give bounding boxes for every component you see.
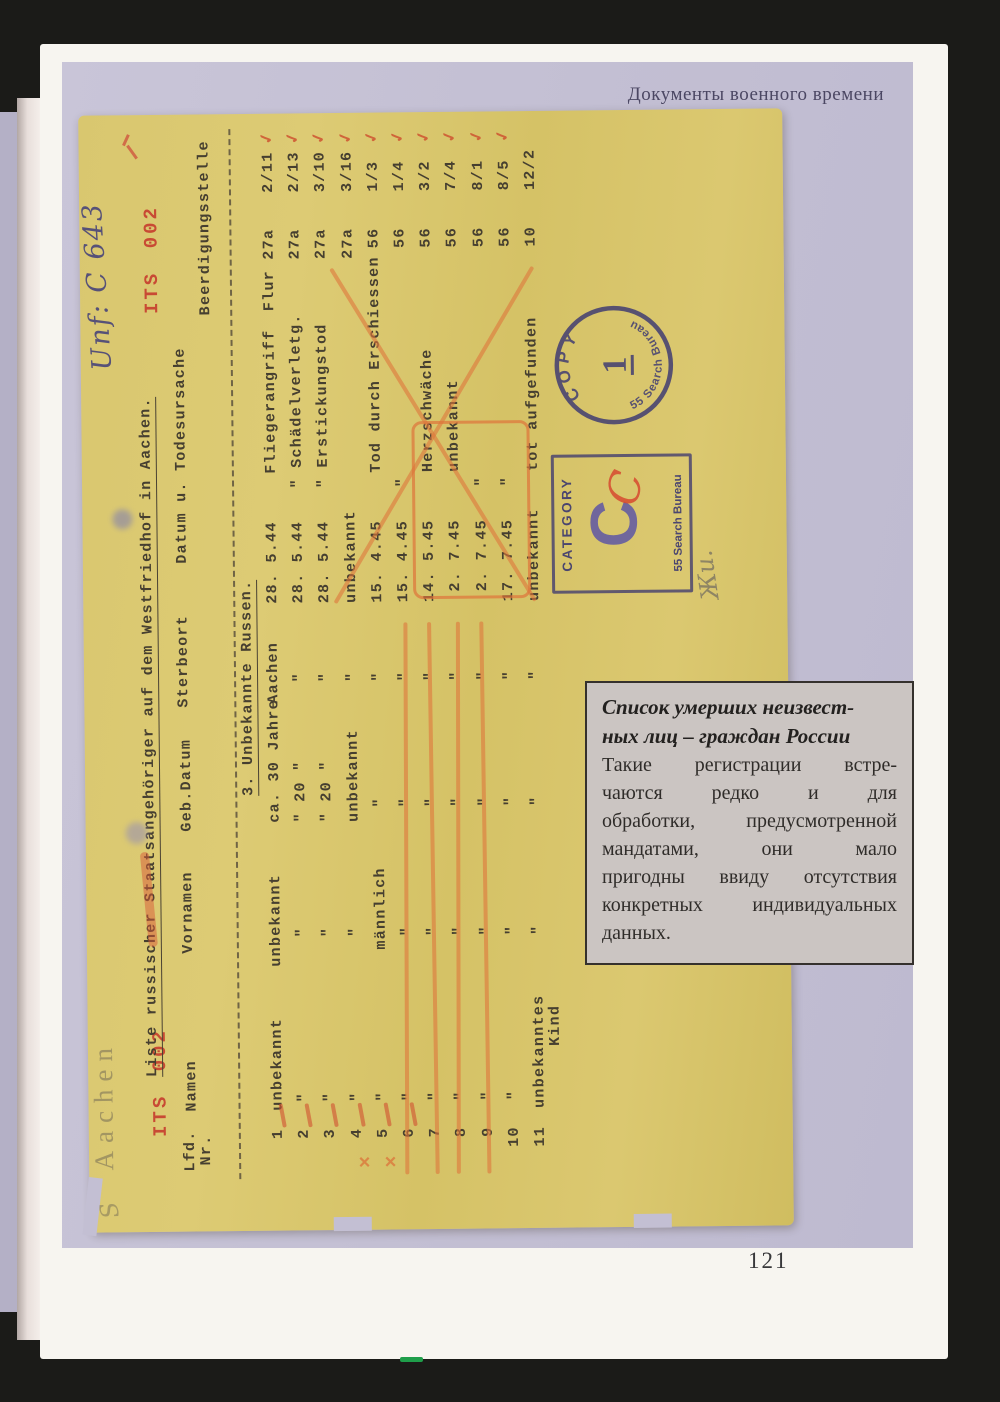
cell-ort: " xyxy=(502,670,518,680)
cell-name: " xyxy=(375,1091,391,1101)
caption-body-line: данных. xyxy=(602,919,897,947)
previous-page-edge xyxy=(0,112,17,1312)
red-dash-mark xyxy=(305,1103,313,1127)
red-dash-mark xyxy=(331,1103,339,1127)
red-check-mark: ✓ xyxy=(491,127,514,145)
cell-name: " xyxy=(506,1090,522,1100)
red-check-mark: ✓ xyxy=(412,127,435,145)
red-check-mark: ✓ xyxy=(465,127,488,145)
cell-nr: 1 xyxy=(271,1129,287,1173)
cell-name: " xyxy=(349,1091,365,1101)
copy-stamp-underline xyxy=(631,355,634,375)
cell-grave: 1/4 xyxy=(392,160,408,191)
cell-grave: 3/2 xyxy=(418,160,434,191)
cell-nr: 10 xyxy=(507,1126,523,1170)
caption-body-line: мандатами, они мало xyxy=(602,835,897,863)
cell-date: 28. 5.44 xyxy=(264,521,281,604)
cell-ort: " xyxy=(292,672,308,682)
cell-name: unbekanntes Kind xyxy=(531,994,564,1108)
caption-body-line: обработки, предусмотренной xyxy=(602,807,897,835)
red-check-mark: ✓ xyxy=(307,128,330,146)
copy-stamp: COPY 55 Search Bureau 1 xyxy=(545,296,682,433)
cell-ort: " xyxy=(345,671,361,681)
ink-smudge xyxy=(112,509,132,529)
cell-geb: " xyxy=(503,796,519,806)
red-check-mark: ✓ xyxy=(281,129,304,147)
caption-heading-line: ных лиц – граждан России xyxy=(602,722,897,751)
document-content-rotated: S Aachen Unf: C 643 ITS 002 ITS 002 List… xyxy=(78,108,794,1232)
cell-vorname: " xyxy=(531,925,547,935)
cell-ort: " xyxy=(371,671,387,681)
cell-vorname: " xyxy=(321,927,337,937)
cell-name: " xyxy=(401,1091,417,1101)
book-photo: Документы военного времени S Aachen Unf:… xyxy=(0,0,1000,1402)
copy-stamp-number: 1 xyxy=(597,356,634,373)
cell-plot: 56 xyxy=(445,227,462,319)
cell-date: 28. 5.44 xyxy=(291,521,308,604)
cell-date: 28. 5.44 xyxy=(317,521,334,604)
orange-cross-mark: × xyxy=(380,1156,403,1168)
cell-ort: Aachen xyxy=(266,642,283,704)
red-check-mark: ✓ xyxy=(386,128,409,146)
cell-grave: 7/4 xyxy=(444,160,460,191)
caption-body-line: чаются редко и для xyxy=(602,779,897,807)
archival-document: S Aachen Unf: C 643 ITS 002 ITS 002 List… xyxy=(78,108,794,1232)
cell-name: unbekannt xyxy=(270,1018,287,1111)
cell-plot: Flur 27a xyxy=(261,229,278,321)
caption-heading: Список умерших неизвест-ных лиц – гражда… xyxy=(602,693,897,751)
cell-name: " xyxy=(297,1092,313,1102)
cell-geb: ca. 30 Jahre xyxy=(266,699,283,823)
cell-vorname: " xyxy=(452,925,468,935)
cell-grave: 8/1 xyxy=(470,160,486,191)
caption-body-line: конкретных индивидуальных xyxy=(602,891,897,919)
cell-plot: 27a xyxy=(288,228,305,320)
red-check-mark: ✓ xyxy=(438,127,461,145)
category-stamp-word: CATEGORY xyxy=(559,458,575,591)
ink-smudge xyxy=(126,822,148,844)
cell-nr: 3 xyxy=(323,1128,339,1172)
cell-cause: Fliegerangriff xyxy=(262,329,280,473)
cell-vorname: " xyxy=(347,926,363,936)
cell-ort: " xyxy=(318,672,334,682)
cell-grave: 3/10 xyxy=(313,151,329,192)
cell-plot: 56 xyxy=(366,228,383,320)
cell-vorname: " xyxy=(504,925,520,935)
cell-plot: 56 xyxy=(471,226,488,318)
green-edge-mark xyxy=(400,1357,423,1362)
cell-cause: " Erstickungstod xyxy=(315,323,333,488)
caption-heading-line: Список умерших неизвест- xyxy=(602,693,897,722)
cell-geb: " 20 " xyxy=(293,761,310,823)
red-check-mark: ✓ xyxy=(255,129,278,147)
caption-body-line: пригодны ввиду отсутствия xyxy=(602,863,897,891)
cell-ort: " xyxy=(528,670,544,680)
cell-geb: unbekannt xyxy=(345,729,362,822)
cell-grave: 1/3 xyxy=(365,161,381,192)
cell-cause: " Schädelverletg. xyxy=(288,313,306,488)
cell-vorname: " xyxy=(295,927,311,937)
cell-nr: 11 xyxy=(533,1126,549,1170)
cell-geb: " xyxy=(529,796,545,806)
cell-grave: 3/16 xyxy=(339,151,355,192)
red-dash-mark xyxy=(357,1103,365,1127)
cell-date: 15. 4.45 xyxy=(395,520,412,603)
crayon-box xyxy=(411,420,531,599)
cell-geb: " xyxy=(372,797,388,807)
category-stamp-bureau: 55 Search Bureau xyxy=(672,456,685,589)
cell-date: unbekannt xyxy=(343,510,360,603)
red-dash-mark xyxy=(383,1102,391,1126)
caption-body: Такие регистрации встре-чаются редко и д… xyxy=(602,751,897,947)
cell-vorname: männlich xyxy=(373,867,390,950)
cell-grave: 12/2 xyxy=(523,149,539,190)
cell-grave: 2/11 xyxy=(261,151,277,192)
red-check-mark: ✓ xyxy=(334,128,357,146)
running-header: Документы военного времени xyxy=(628,84,884,106)
caption-box: Список умерших неизвест-ных лиц – гражда… xyxy=(585,681,914,965)
orange-cross-mark: × xyxy=(354,1156,377,1168)
cell-grave: 2/13 xyxy=(287,151,303,192)
cell-vorname: unbekannt xyxy=(268,874,285,967)
cell-plot: 27a xyxy=(314,228,331,320)
cell-grave: 8/5 xyxy=(496,159,512,190)
red-dash-mark xyxy=(409,1102,417,1126)
book-gutter xyxy=(17,98,40,1340)
red-check-mark: ✓ xyxy=(360,128,383,146)
caption-body-line: Такие регистрации встре- xyxy=(602,751,897,779)
cell-plot: 56 xyxy=(419,227,436,319)
cell-geb: " 20 " xyxy=(319,760,336,822)
cell-name: " xyxy=(323,1092,339,1102)
cell-plot: 56 xyxy=(392,227,409,319)
cell-nr: 2 xyxy=(297,1128,313,1172)
page-number: 121 xyxy=(748,1248,789,1274)
